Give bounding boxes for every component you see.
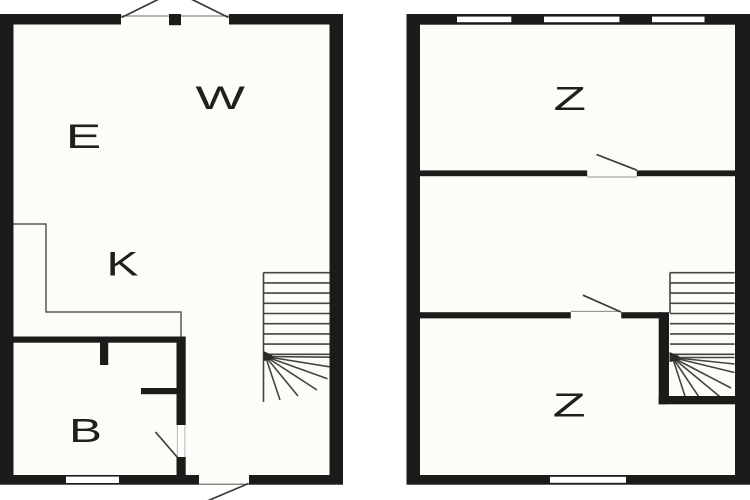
svg-text:W: W bbox=[196, 80, 246, 116]
svg-text:B: B bbox=[69, 413, 102, 450]
svg-text:Z: Z bbox=[553, 388, 586, 425]
svg-text:Z: Z bbox=[554, 81, 587, 118]
svg-text:K: K bbox=[107, 245, 139, 283]
svg-text:E: E bbox=[66, 118, 102, 156]
